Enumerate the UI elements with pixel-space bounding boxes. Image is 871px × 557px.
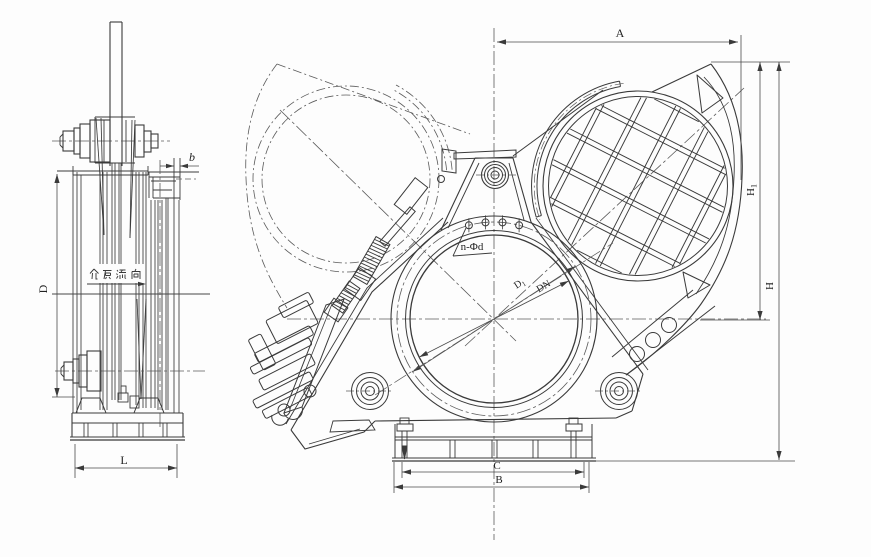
svg-text:D: D [36, 284, 50, 293]
svg-text:L: L [120, 453, 127, 467]
svg-text:n-Φd: n-Φd [461, 241, 484, 253]
svg-text:b: b [189, 150, 195, 164]
svg-text:A: A [616, 26, 625, 40]
svg-text:B: B [495, 474, 502, 486]
svg-text:C: C [493, 460, 500, 472]
svg-text:H: H [764, 282, 776, 290]
